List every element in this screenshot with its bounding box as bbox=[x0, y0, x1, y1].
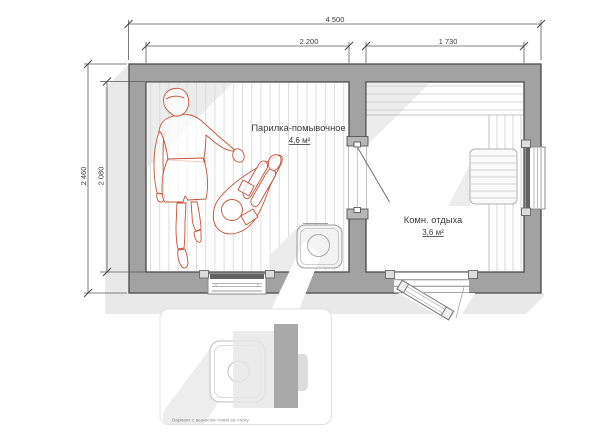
svg-text:2 460: 2 460 bbox=[79, 167, 88, 186]
svg-text:Комн. отдыха: Комн. отдыха bbox=[404, 214, 463, 225]
svg-text:Вариант с выносом топки за сте: Вариант с выносом топки за стену bbox=[172, 418, 249, 424]
svg-text:2 200: 2 200 bbox=[300, 37, 319, 46]
svg-text:4,6 м²: 4,6 м² bbox=[289, 136, 311, 145]
svg-text:Парилка-помывочное: Парилка-помывочное bbox=[251, 122, 345, 133]
svg-text:1 730: 1 730 bbox=[439, 37, 458, 46]
svg-text:3,6 м²: 3,6 м² bbox=[422, 228, 444, 237]
svg-text:2 080: 2 080 bbox=[97, 167, 106, 186]
svg-text:4 500: 4 500 bbox=[326, 15, 345, 24]
